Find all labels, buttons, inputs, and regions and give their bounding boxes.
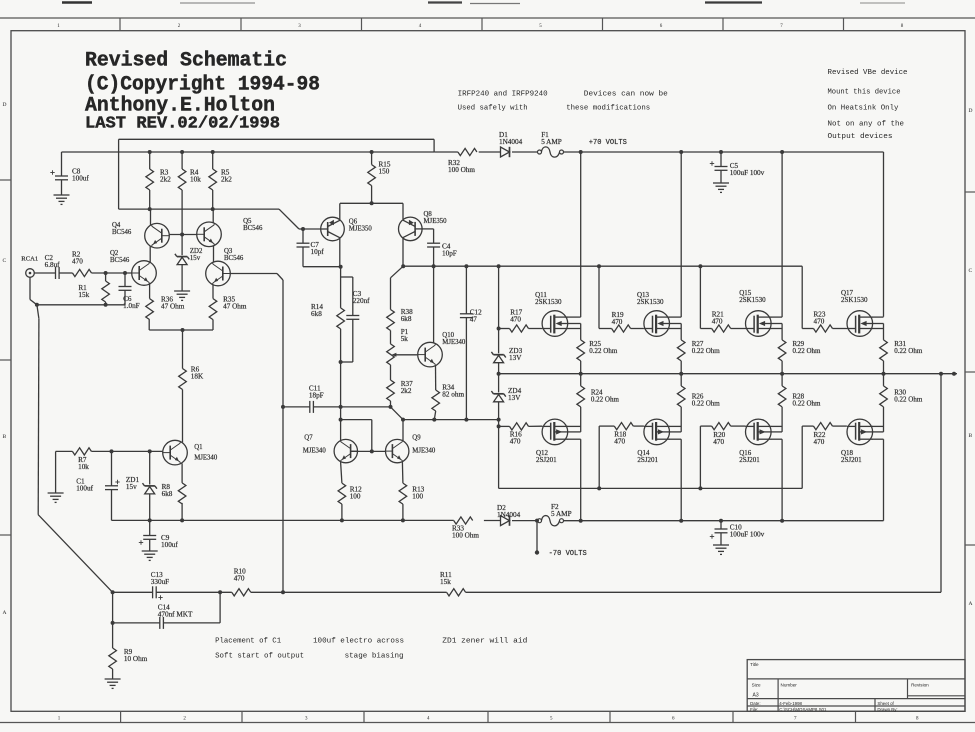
svg-text:2SJ201: 2SJ201 — [536, 456, 557, 464]
svg-text:1N4004: 1N4004 — [497, 511, 521, 519]
svg-text:330uF: 330uF — [151, 578, 169, 586]
svg-text:100uf electro across: 100uf electro across — [313, 638, 404, 646]
svg-text:15v: 15v — [126, 483, 137, 491]
svg-text:Revised Schematic: Revised Schematic — [85, 50, 287, 73]
svg-text:A: A — [3, 610, 7, 616]
svg-text:2k2: 2k2 — [160, 176, 171, 184]
svg-text:100uF 100v: 100uF 100v — [730, 531, 765, 539]
svg-text:470: 470 — [510, 316, 521, 324]
svg-text:0.22 Ohm: 0.22 Ohm — [692, 400, 721, 408]
svg-text:MJE340: MJE340 — [303, 448, 327, 455]
svg-text:2SJ201: 2SJ201 — [637, 456, 658, 464]
svg-text:100: 100 — [350, 493, 361, 501]
svg-text:470: 470 — [814, 438, 825, 446]
svg-text:5 AMP: 5 AMP — [551, 510, 572, 518]
svg-text:470: 470 — [814, 318, 825, 326]
svg-text:2SK1530: 2SK1530 — [739, 296, 766, 304]
svg-text:Sheet of: Sheet of — [877, 701, 894, 706]
svg-text:Q6: Q6 — [349, 218, 358, 225]
svg-text:2k2: 2k2 — [221, 176, 232, 184]
svg-text:+70 VOLTS: +70 VOLTS — [589, 139, 627, 147]
svg-text:100uf: 100uf — [76, 485, 93, 493]
svg-text:10 Ohm: 10 Ohm — [124, 655, 148, 663]
svg-text:220nf: 220nf — [353, 297, 370, 305]
svg-text:On Heatsink Only: On Heatsink Only — [828, 104, 899, 112]
svg-text:82 ohm: 82 ohm — [442, 391, 464, 399]
svg-text:Soft start of output: Soft start of output — [215, 653, 304, 661]
svg-text:13V: 13V — [509, 354, 522, 362]
svg-text:Q8: Q8 — [424, 211, 433, 218]
svg-text:10k: 10k — [78, 463, 89, 471]
svg-text:IRFP240 and IRFP9240: IRFP240 and IRFP9240 — [458, 90, 548, 98]
svg-text:RCA1: RCA1 — [21, 256, 38, 263]
svg-text:100uf: 100uf — [161, 541, 178, 549]
svg-text:MJE350: MJE350 — [424, 218, 448, 225]
svg-text:Size: Size — [752, 682, 761, 687]
svg-text:470: 470 — [510, 438, 521, 446]
svg-text:Q9: Q9 — [412, 435, 421, 442]
svg-text:Revised VBe device: Revised VBe device — [828, 69, 908, 77]
svg-text:0.22 Ohm: 0.22 Ohm — [692, 347, 721, 355]
svg-text:(C)Copyright 1994-98: (C)Copyright 1994-98 — [85, 74, 320, 97]
svg-text:0.22 Ohm: 0.22 Ohm — [894, 396, 923, 404]
svg-text:100 Ohm: 100 Ohm — [452, 532, 479, 540]
svg-text:Q1: Q1 — [194, 444, 202, 451]
svg-text:ZD1 zener will aid: ZD1 zener will aid — [442, 638, 527, 646]
svg-text:Number: Number — [781, 683, 798, 688]
svg-text:Placement of C1: Placement of C1 — [215, 638, 281, 646]
svg-text:150: 150 — [379, 168, 390, 176]
svg-text:stage biasing: stage biasing — [345, 653, 404, 661]
svg-text:5 AMP: 5 AMP — [541, 138, 562, 146]
svg-text:10pf: 10pf — [311, 248, 325, 256]
svg-text:Q3: Q3 — [224, 248, 233, 255]
svg-text:1.0nF: 1.0nF — [123, 302, 140, 310]
svg-text:10pF: 10pF — [442, 250, 457, 258]
svg-text:470: 470 — [713, 438, 724, 446]
svg-text:Mount this device: Mount this device — [828, 88, 901, 96]
svg-text:0.22 Ohm: 0.22 Ohm — [894, 347, 923, 355]
svg-text:47 Ohm: 47 Ohm — [161, 303, 185, 311]
svg-text:Q4: Q4 — [112, 222, 121, 229]
svg-text:Drawn By:: Drawn By: — [877, 707, 897, 712]
svg-text:D: D — [969, 108, 973, 114]
svg-text:A: A — [969, 601, 973, 607]
svg-text:C: C — [3, 258, 7, 264]
svg-text:Revision: Revision — [911, 683, 929, 688]
svg-text:470: 470 — [712, 318, 723, 326]
svg-text:Q10: Q10 — [442, 332, 454, 339]
svg-text:Devices can now be: Devices can now be — [584, 90, 668, 98]
svg-text:13V: 13V — [508, 394, 521, 402]
svg-text:Q5: Q5 — [243, 218, 252, 225]
svg-text:47: 47 — [470, 316, 478, 324]
svg-text:2SK1530: 2SK1530 — [535, 298, 562, 306]
svg-text:2SJ201: 2SJ201 — [841, 456, 862, 464]
svg-text:Q7: Q7 — [304, 435, 313, 442]
svg-text:470: 470 — [612, 318, 623, 326]
svg-text:Title: Title — [750, 662, 759, 667]
svg-text:Not on any of the: Not on any of the — [828, 120, 905, 128]
svg-text:BC546: BC546 — [243, 225, 263, 232]
svg-text:470nf MKT: 470nf MKT — [158, 611, 193, 619]
svg-text:2SK1530: 2SK1530 — [841, 296, 868, 304]
svg-text:LAST REV.02/02/1998: LAST REV.02/02/1998 — [85, 114, 280, 133]
svg-text:-70 VOLTS: -70 VOLTS — [549, 550, 587, 558]
svg-text:BC546: BC546 — [224, 255, 244, 262]
svg-text:B: B — [3, 434, 7, 440]
svg-text:10k: 10k — [190, 176, 201, 184]
svg-text:C:\SCH\MOSAMP8.S01: C:\SCH\MOSAMP8.S01 — [779, 707, 827, 712]
svg-text:15k: 15k — [440, 578, 451, 586]
svg-text:0.22 Ohm: 0.22 Ohm — [793, 400, 822, 408]
svg-text:MJE340: MJE340 — [194, 454, 218, 461]
svg-text:A3: A3 — [753, 692, 759, 698]
svg-text:15v: 15v — [190, 255, 201, 262]
svg-text:470: 470 — [72, 258, 83, 266]
svg-text:6k8: 6k8 — [311, 310, 322, 318]
svg-text:Output devices: Output devices — [828, 133, 893, 141]
svg-text:C: C — [969, 268, 973, 274]
svg-text:4-Feb-1998: 4-Feb-1998 — [779, 701, 802, 706]
svg-text:ZD2: ZD2 — [190, 248, 203, 255]
svg-text:100: 100 — [412, 493, 423, 501]
svg-text:2k2: 2k2 — [401, 387, 412, 395]
svg-text:BC546: BC546 — [112, 229, 132, 236]
svg-text:470: 470 — [614, 438, 625, 446]
svg-text:MJE350: MJE350 — [349, 226, 373, 233]
svg-text:0.22 Ohm: 0.22 Ohm — [793, 347, 822, 355]
svg-text:these modifications: these modifications — [566, 105, 650, 113]
svg-text:0.22 Ohm: 0.22 Ohm — [589, 347, 618, 355]
svg-text:100uf: 100uf — [72, 175, 89, 183]
svg-text:1N4004: 1N4004 — [499, 138, 523, 146]
svg-text:18pF: 18pF — [309, 392, 324, 400]
svg-text:15k: 15k — [78, 291, 89, 299]
svg-text:6k8: 6k8 — [162, 490, 173, 498]
svg-text:Q2: Q2 — [110, 250, 119, 257]
svg-text:Date:: Date: — [750, 701, 761, 706]
svg-text:BC546: BC546 — [110, 257, 130, 264]
svg-text:File:: File: — [750, 707, 758, 712]
svg-text:47 Ohm: 47 Ohm — [223, 303, 247, 311]
svg-text:B: B — [969, 433, 973, 439]
svg-text:D: D — [3, 102, 7, 108]
svg-text:470: 470 — [234, 575, 245, 583]
svg-text:5k: 5k — [401, 335, 409, 343]
svg-text:2SK1530: 2SK1530 — [637, 298, 664, 306]
svg-text:MJE340: MJE340 — [442, 339, 466, 346]
svg-text:Used safely with: Used safely with — [458, 105, 528, 113]
svg-text:6.8uf: 6.8uf — [45, 261, 61, 269]
svg-text:2SJ201: 2SJ201 — [739, 456, 760, 464]
svg-text:MJE340: MJE340 — [412, 448, 436, 455]
svg-text:18K: 18K — [191, 373, 204, 381]
svg-text:6k8: 6k8 — [401, 315, 412, 323]
svg-text:100uF 100v: 100uF 100v — [730, 169, 765, 177]
svg-text:0.22 Ohm: 0.22 Ohm — [591, 396, 620, 404]
svg-text:100 Ohm: 100 Ohm — [448, 166, 475, 174]
